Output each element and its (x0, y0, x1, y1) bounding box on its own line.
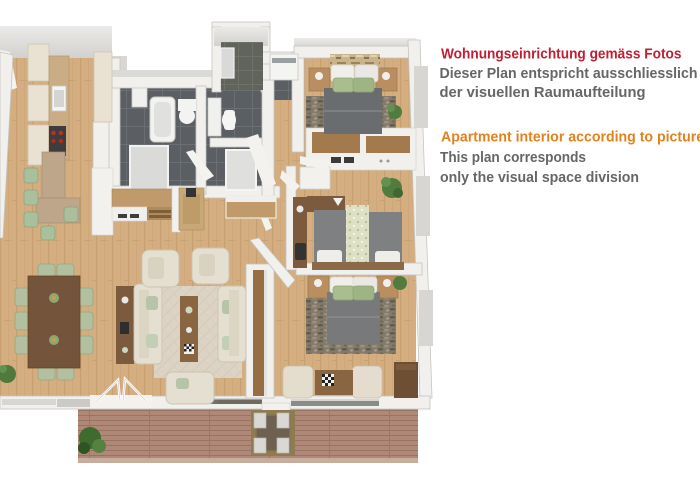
svg-text:only the visual space division: only the visual space division (440, 170, 639, 186)
svg-text:Apartment interior according t: Apartment interior according to pictures (441, 129, 700, 145)
svg-text:Dieser Plan entspricht ausschl: Dieser Plan entspricht ausschliesslich (440, 66, 698, 82)
svg-text:der visuellen Raumaufteilung: der visuellen Raumaufteilung (440, 85, 646, 101)
svg-text:This plan corresponds: This plan corresponds (440, 150, 586, 166)
svg-text:Wohnungseinrichtung gemäss Fot: Wohnungseinrichtung gemäss Fotos (441, 46, 682, 62)
